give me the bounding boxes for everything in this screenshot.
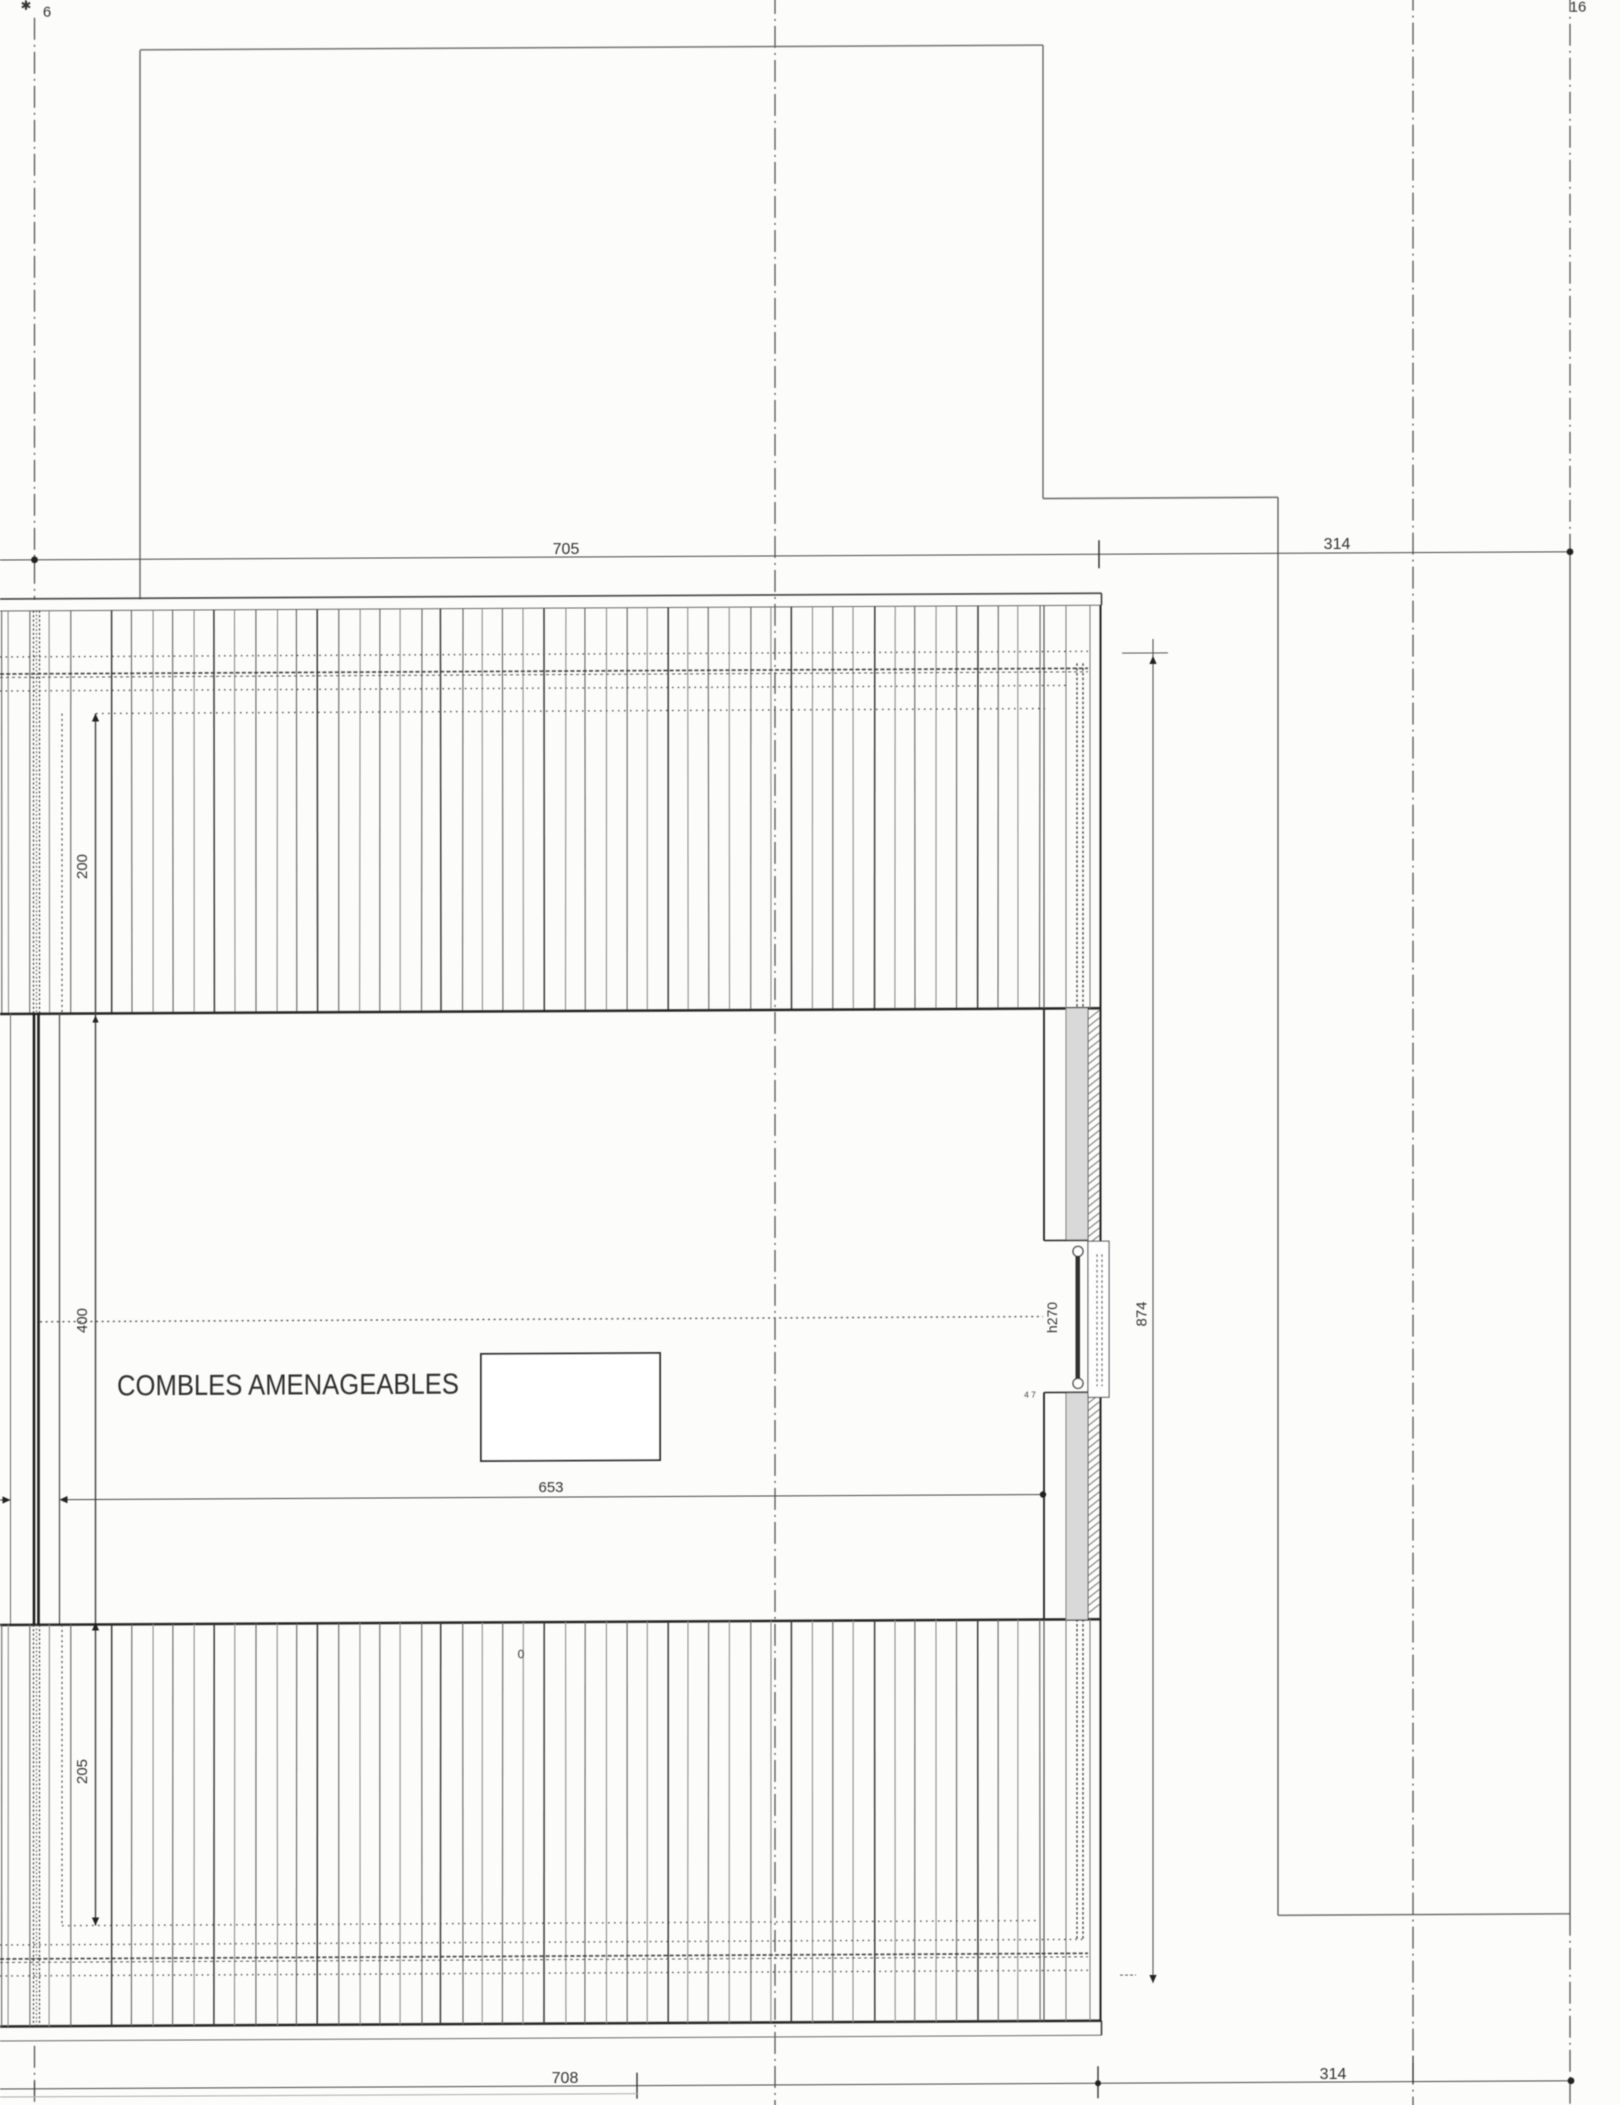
svg-text:314: 314 [1324,536,1351,553]
svg-text:314: 314 [1320,2066,1347,2083]
svg-text:COMBLES AMENAGEABLES: COMBLES AMENAGEABLES [117,1369,459,1403]
svg-text:h270: h270 [1044,1302,1060,1333]
svg-text:705: 705 [553,541,580,558]
svg-text:874: 874 [1134,1301,1151,1326]
svg-text:16: 16 [1570,0,1587,16]
svg-text:708: 708 [552,2070,579,2087]
svg-text:200: 200 [74,854,91,879]
svg-text:6: 6 [43,4,51,21]
svg-text:0: 0 [518,1647,525,1661]
svg-text:653: 653 [538,1479,563,1496]
svg-text:205: 205 [74,1759,91,1784]
svg-text:400: 400 [74,1308,91,1333]
svg-text:✱: ✱ [21,0,32,13]
svg-text:4 7: 4 7 [1024,1390,1036,1400]
